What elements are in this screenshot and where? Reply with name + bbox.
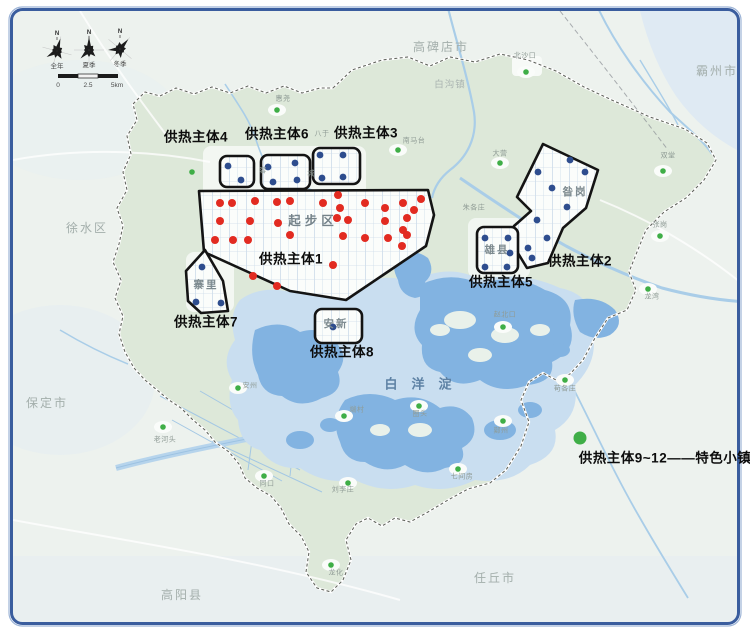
supply-plant-dot xyxy=(229,236,237,244)
supply-plant-dot xyxy=(218,300,225,307)
town-dot xyxy=(562,377,568,383)
town-dot xyxy=(189,169,195,175)
supply-plant-dot xyxy=(582,169,589,176)
supply-plant-dot xyxy=(340,152,347,159)
supply-plant-dot xyxy=(535,169,542,176)
supply-plant-dot xyxy=(334,191,342,199)
supply-plant-dot xyxy=(246,217,254,225)
supply-plant-dot xyxy=(238,177,245,184)
town-dot xyxy=(657,233,663,239)
supply-plant-dot xyxy=(398,242,406,250)
supply-plant-dot xyxy=(361,234,369,242)
supply-plant-dot xyxy=(399,199,407,207)
supply-plant-dot xyxy=(270,179,277,186)
supply-plant-dot xyxy=(333,214,341,222)
supply-plant-dot xyxy=(319,199,327,207)
supply-plant-dot xyxy=(403,231,411,239)
supply-plant-dot xyxy=(292,160,299,167)
supply-plant-dot xyxy=(482,235,489,242)
town-dot xyxy=(274,107,280,113)
supply-plant-dot xyxy=(564,204,571,211)
supply-plant-dot xyxy=(403,214,411,222)
supply-plant-dot xyxy=(319,175,326,182)
town-dot xyxy=(235,385,241,391)
town-dot xyxy=(328,562,334,568)
supply-plant-dot xyxy=(336,204,344,212)
zone-outline-8 xyxy=(315,309,362,343)
supply-plant-dot xyxy=(274,219,282,227)
town-dot xyxy=(497,160,503,166)
map-page: 高碑店市霸州市徐水区保定市高阳县任丘市白沟镇北沙口南马台惠尧大营双堂张岗龙湾赵北… xyxy=(0,0,750,638)
supply-plant-dot xyxy=(216,199,224,207)
town-dot xyxy=(416,403,422,409)
legend-green-dot xyxy=(574,432,587,445)
supply-plant-dot xyxy=(417,195,425,203)
supply-plant-dot xyxy=(251,197,259,205)
supply-plant-dot xyxy=(273,282,281,290)
supply-plant-dot xyxy=(317,152,324,159)
town-dot xyxy=(395,147,401,153)
supply-plant-dot xyxy=(505,235,512,242)
town-dot xyxy=(523,69,529,75)
supply-plant-dot xyxy=(249,272,257,280)
supply-plant-dot xyxy=(567,157,574,164)
supply-plant-dot xyxy=(265,164,272,171)
supply-plant-dot xyxy=(410,206,418,214)
supply-plant-dot xyxy=(525,245,532,252)
supply-plant-dot xyxy=(344,216,352,224)
town-dot xyxy=(660,168,666,174)
supply-plant-dot xyxy=(504,264,511,271)
supply-plant-dot xyxy=(340,174,347,181)
supply-plant-dot xyxy=(286,197,294,205)
supply-plant-dot xyxy=(294,177,301,184)
map-canvas xyxy=(0,0,750,638)
supply-plant-dot xyxy=(384,234,392,242)
town-dot xyxy=(345,480,351,486)
town-dot xyxy=(160,424,166,430)
supply-plant-dot xyxy=(381,217,389,225)
supply-plant-dot xyxy=(529,255,536,262)
town-dot xyxy=(261,473,267,479)
town-dot xyxy=(645,286,651,292)
supply-plant-dot xyxy=(544,235,551,242)
supply-plant-dot xyxy=(225,163,232,170)
supply-plant-dot xyxy=(381,204,389,212)
supply-plant-dot xyxy=(228,199,236,207)
supply-plant-dot xyxy=(507,250,514,257)
supply-plant-dot xyxy=(193,299,200,306)
town-dot xyxy=(500,418,506,424)
supply-plant-dot xyxy=(330,324,337,331)
supply-plant-dot xyxy=(216,217,224,225)
scale-bar xyxy=(58,74,118,78)
town-dot xyxy=(455,466,461,472)
supply-plant-dot xyxy=(549,185,556,192)
supply-plant-dot xyxy=(534,217,541,224)
supply-plant-dot xyxy=(482,264,489,271)
supply-plant-dot xyxy=(361,199,369,207)
zone-outline-6 xyxy=(261,155,310,189)
supply-plant-dot xyxy=(199,264,206,271)
supply-plant-dot xyxy=(286,231,294,239)
supply-plant-dot xyxy=(329,261,337,269)
town-dot xyxy=(341,413,347,419)
supply-plant-dot xyxy=(273,198,281,206)
town-dot xyxy=(500,324,506,330)
supply-plant-dot xyxy=(244,236,252,244)
supply-plant-dot xyxy=(211,236,219,244)
supply-plant-dot xyxy=(339,232,347,240)
zone-outline-4 xyxy=(220,156,254,187)
